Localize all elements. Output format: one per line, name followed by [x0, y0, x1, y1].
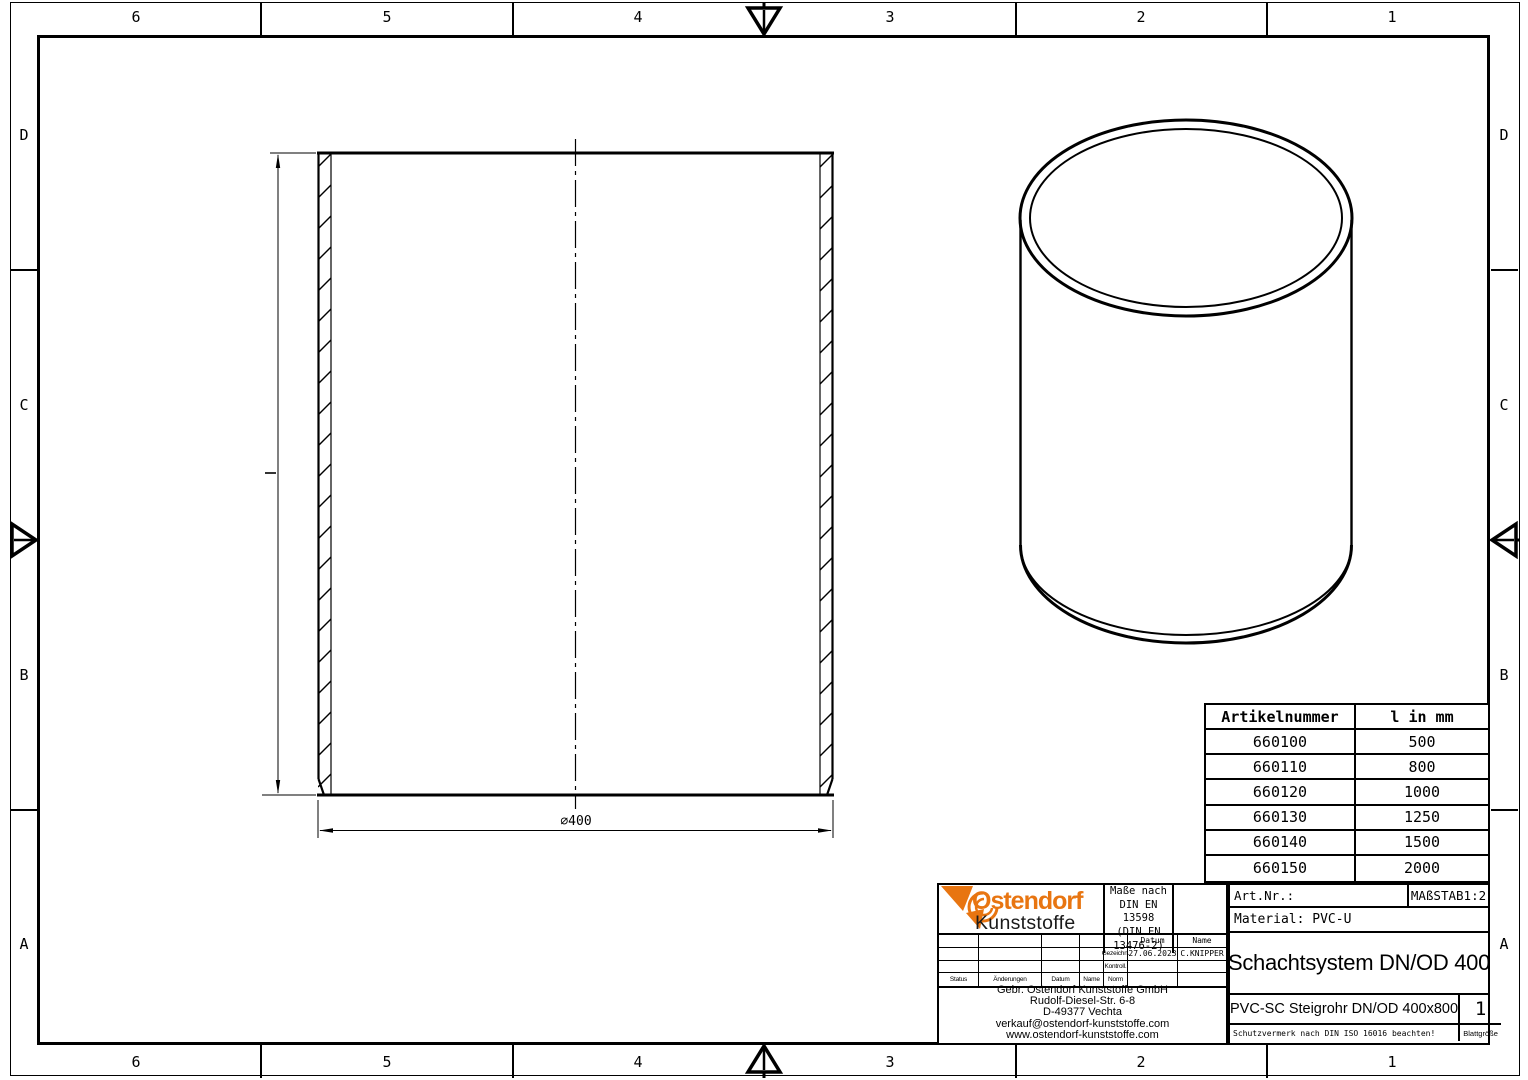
company-logo: Ostendorf Kunststoffe — [939, 885, 1105, 953]
drawn-date: 27.06.2023 — [1128, 948, 1178, 961]
standards-line: DIN EN 13598 — [1105, 899, 1172, 926]
parts-table-row: 660120 1000 — [1206, 780, 1488, 805]
article-number-label: Art.Nr.: — [1230, 885, 1407, 906]
title-block-left: Ostendorf Kunststoffe Maße nach DIN EN 1… — [937, 883, 1228, 1045]
grid-row-label: D — [10, 126, 38, 144]
length-value: 2000 — [1356, 856, 1488, 881]
parts-table-row: 660100 500 — [1206, 730, 1488, 755]
revision-cell — [1178, 973, 1226, 986]
artnr-scale-row: Art.Nr.: MAßSTAB1:2 — [1230, 885, 1488, 908]
grid-column-label: 4 — [613, 1053, 663, 1071]
title-block-right: Art.Nr.: MAßSTAB1:2 Material: PVC-U Scha… — [1228, 883, 1490, 1045]
parts-table-row: 660110 800 — [1206, 755, 1488, 780]
drawn-by-name: C.KNIPPER — [1178, 948, 1226, 961]
revision-header-name: Name — [1178, 935, 1226, 948]
frame-divider — [512, 2, 514, 35]
grid-row-label: C — [10, 396, 38, 414]
kontrolliert-label: Kontroll. — [1104, 961, 1128, 974]
scale-value: MAßSTAB1:2 — [1407, 885, 1488, 906]
grid-column-label: 5 — [362, 1053, 412, 1071]
parts-table-header: l in mm — [1356, 705, 1488, 728]
revision-cell — [939, 961, 979, 974]
parts-table-header: Artikelnummer — [1206, 705, 1356, 728]
subtitle-sheet-row: PVC-SC Steigrohr DN/OD 400x800 Schutzver… — [1230, 995, 1488, 1041]
grid-row-label: B — [10, 666, 38, 684]
length-value: 800 — [1356, 755, 1488, 778]
company-city: D-49377 Vechta — [1043, 1007, 1122, 1018]
frame-divider — [260, 2, 262, 35]
title-block-logo-row: Ostendorf Kunststoffe Maße nach DIN EN 1… — [939, 885, 1226, 935]
article-number: 660100 — [1206, 730, 1356, 753]
drawing-title: Schachtsystem DN/OD 400 — [1230, 933, 1488, 995]
logo-line2: Kunststoffe — [975, 912, 1076, 932]
revision-cell — [1128, 961, 1178, 974]
company-address: Gebr. Ostendorf Kunststoffe GmbH Rudolf-… — [939, 988, 1226, 1038]
parts-table-row: 660130 1250 — [1206, 806, 1488, 831]
grid-row-label: B — [1490, 666, 1518, 684]
grid-column-label: 3 — [865, 1053, 915, 1071]
grid-row-label: A — [10, 935, 38, 953]
article-number: 660140 — [1206, 831, 1356, 854]
frame-divider — [10, 269, 37, 271]
parts-table-row: 660150 2000 — [1206, 856, 1488, 881]
revision-cell — [1080, 961, 1104, 974]
parts-table-row: 660140 1500 — [1206, 831, 1488, 856]
grid-row-label: C — [1490, 396, 1518, 414]
grid-column-label: 5 — [362, 8, 412, 26]
frame-divider — [260, 1045, 262, 1078]
sheet-block: 1 Blattgröße — [1458, 995, 1501, 1041]
revision-cell — [1178, 961, 1226, 974]
logo-line1: Ostendorf — [972, 887, 1084, 915]
frame-divider — [10, 809, 37, 811]
grid-column-label: 2 — [1116, 1053, 1166, 1071]
length-value: 1250 — [1356, 806, 1488, 829]
article-number: 660150 — [1206, 856, 1356, 881]
sheet-number: 1 — [1460, 995, 1501, 1025]
grid-column-label: 6 — [111, 1053, 161, 1071]
ostendorf-logo-icon: Ostendorf Kunststoffe — [939, 885, 1103, 932]
frame-divider — [1015, 1045, 1017, 1078]
status-label: Status — [939, 973, 979, 986]
grid-row-label: D — [1490, 126, 1518, 144]
subtitle-block: PVC-SC Steigrohr DN/OD 400x800 Schutzver… — [1230, 995, 1458, 1041]
parts-table: Artikelnummer l in mm 660100 500 660110 … — [1204, 703, 1490, 883]
frame-divider — [512, 1045, 514, 1078]
frame-divider — [1491, 809, 1518, 811]
grid-column-label: 6 — [111, 8, 161, 26]
article-number: 660120 — [1206, 780, 1356, 803]
revision-cell — [1104, 935, 1128, 948]
gezeichnet-label: Gezeichn. — [1104, 948, 1128, 961]
protection-note: Schutzvermerk nach DIN ISO 16016 beachte… — [1230, 1025, 1458, 1041]
parts-table-header-row: Artikelnummer l in mm — [1206, 705, 1488, 730]
revision-cell — [1042, 961, 1080, 974]
grid-column-label: 3 — [865, 8, 915, 26]
frame-divider — [1266, 1045, 1268, 1078]
length-value: 1000 — [1356, 780, 1488, 803]
article-number: 660110 — [1206, 755, 1356, 778]
drawing-subtitle: PVC-SC Steigrohr DN/OD 400x800 — [1230, 995, 1458, 1025]
company-website: www.ostendorf-kunststoffe.com — [1006, 1030, 1159, 1041]
length-value: 500 — [1356, 730, 1488, 753]
grid-column-label: 4 — [613, 8, 663, 26]
grid-row-label: A — [1490, 935, 1518, 953]
article-number: 660130 — [1206, 806, 1356, 829]
revision-cell — [979, 961, 1042, 974]
revision-header-datum: Datum — [1128, 935, 1178, 948]
sheet-size-label: Blattgröße — [1460, 1025, 1501, 1041]
frame-divider — [1015, 2, 1017, 35]
grid-column-label: 1 — [1367, 8, 1417, 26]
standards-line: Maße nach — [1110, 885, 1167, 899]
frame-divider — [1491, 269, 1518, 271]
grid-column-label: 1 — [1367, 1053, 1417, 1071]
drawing-sheet: ⌀400 — [0, 0, 1528, 1080]
material-value: Material: PVC-U — [1230, 908, 1488, 933]
grid-column-label: 2 — [1116, 8, 1166, 26]
length-value: 1500 — [1356, 831, 1488, 854]
frame-divider — [1266, 2, 1268, 35]
